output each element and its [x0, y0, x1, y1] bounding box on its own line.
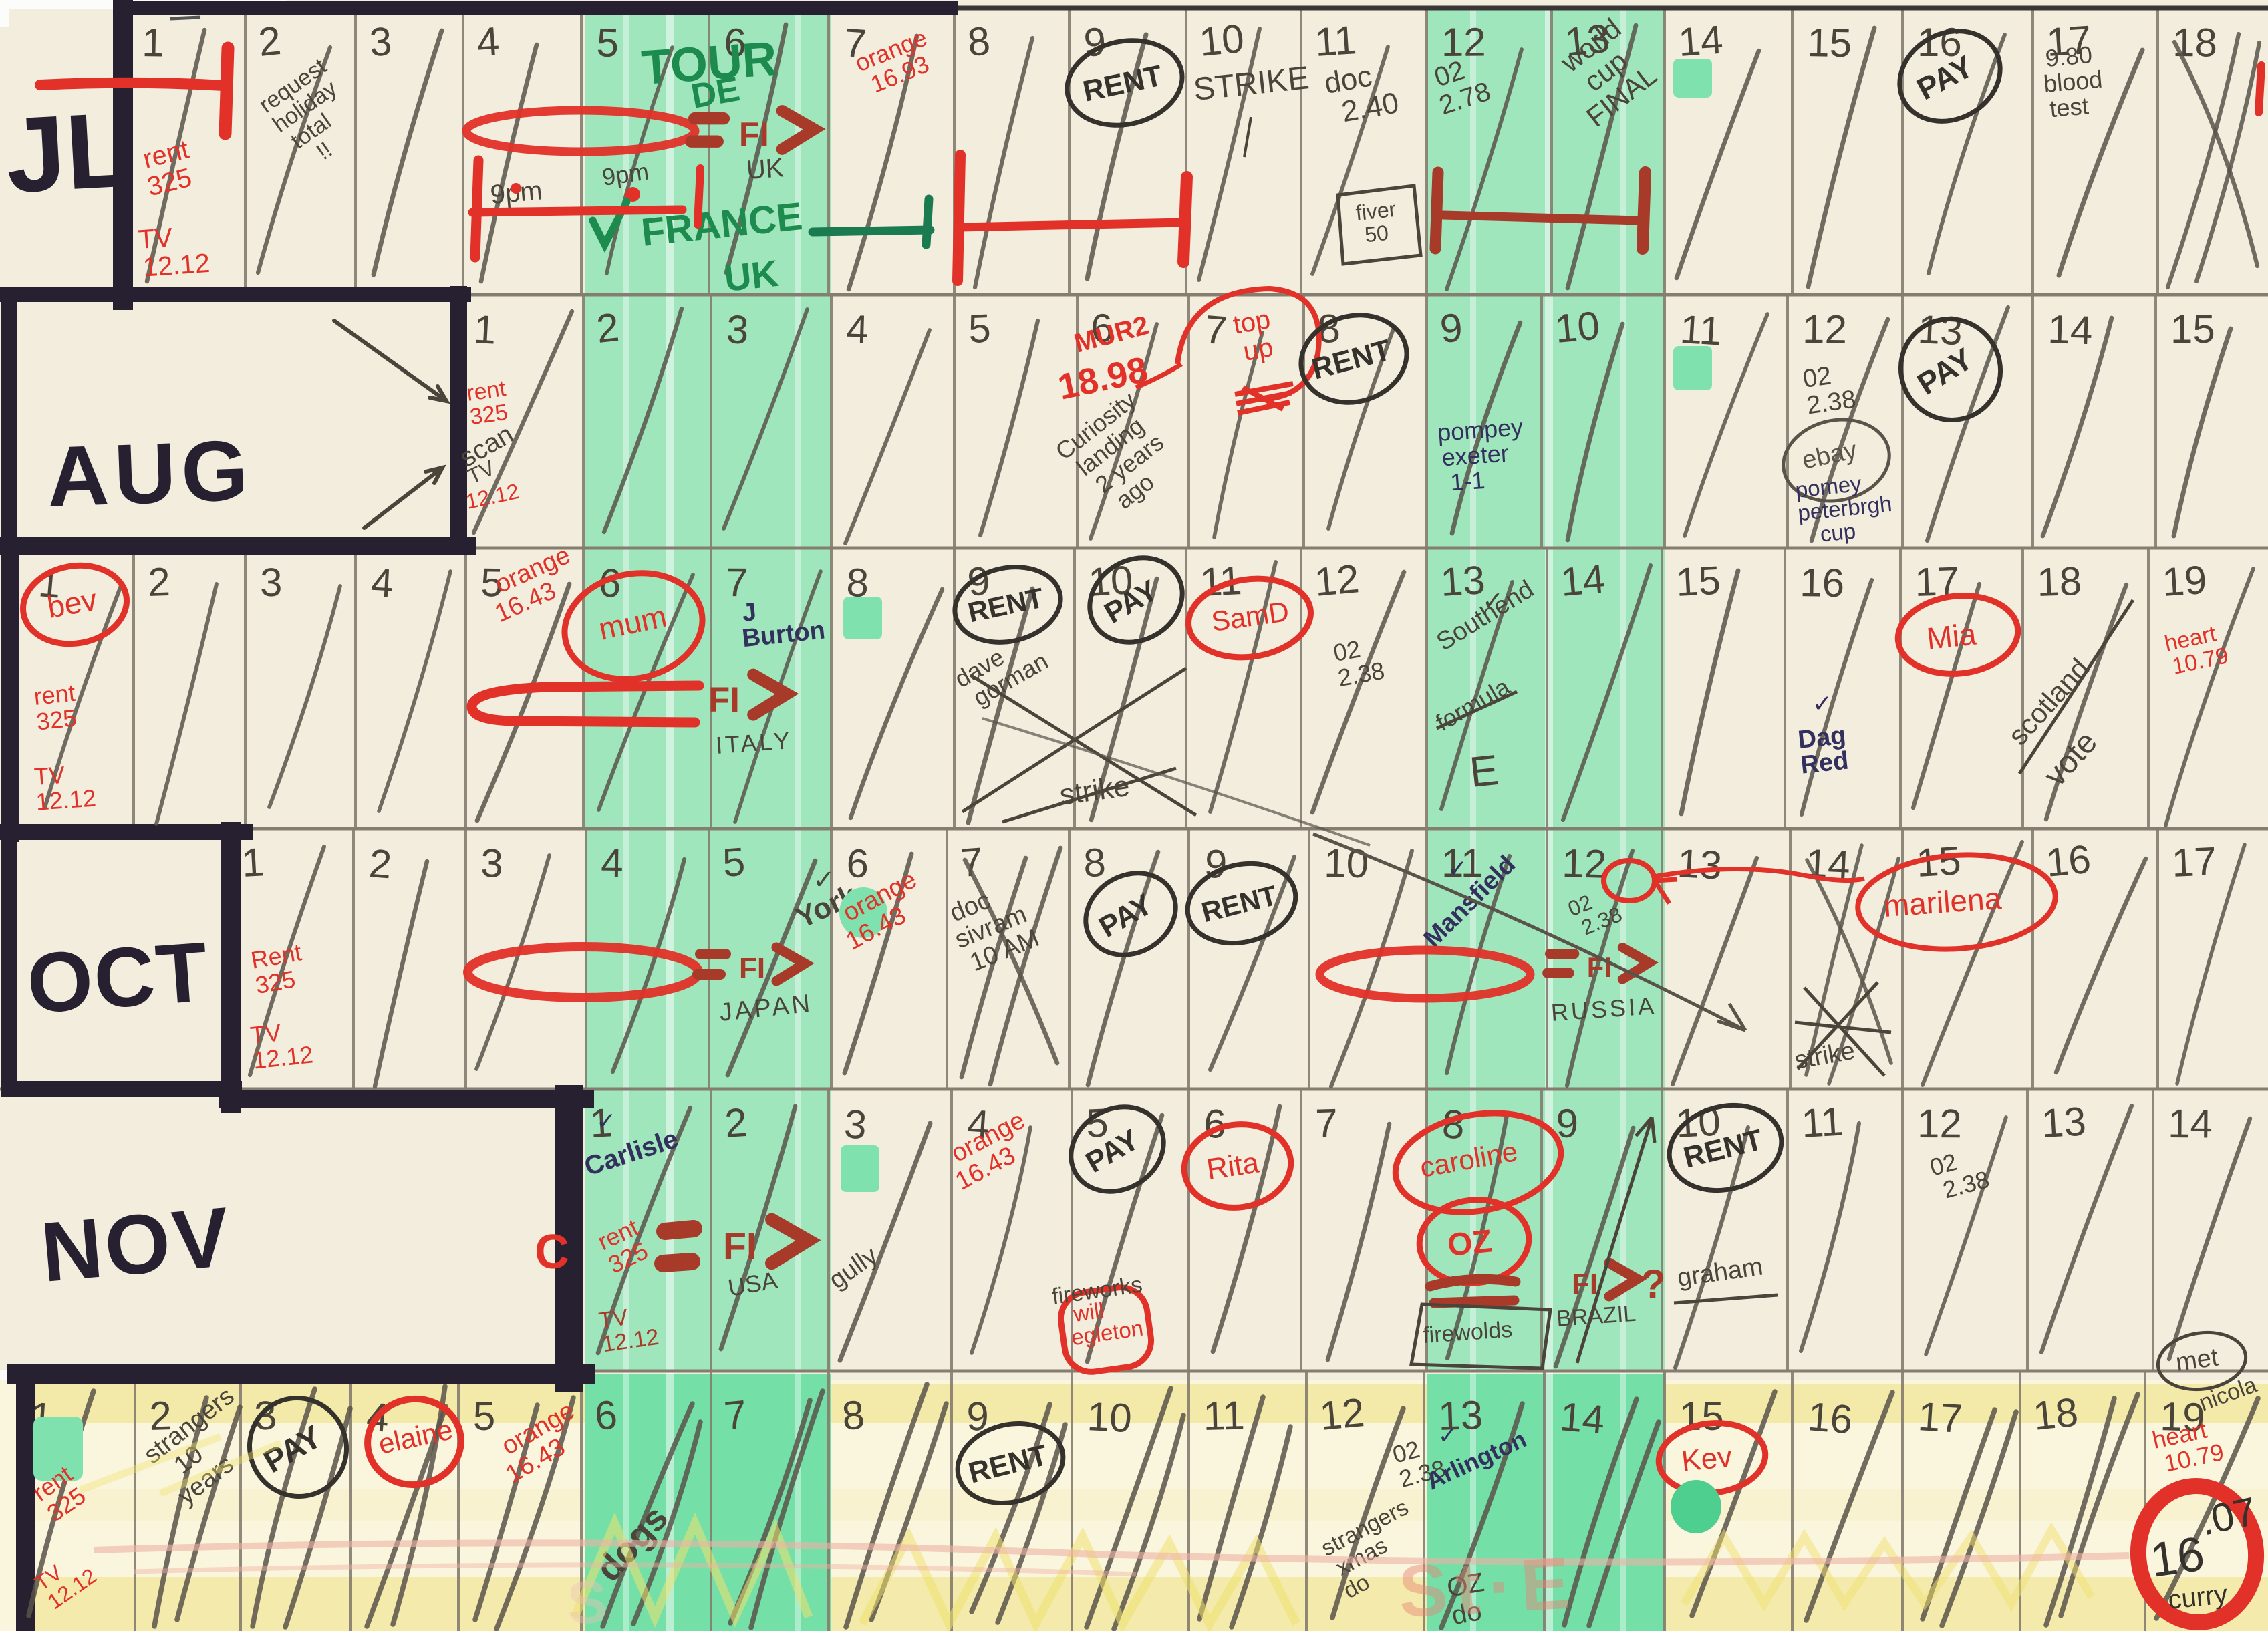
- svg-text:14: 14: [2168, 1101, 2213, 1146]
- svg-text:16: 16: [2147, 1527, 2207, 1587]
- svg-text:12: 12: [1441, 19, 1486, 65]
- svg-text:UK: UK: [722, 252, 781, 299]
- svg-text:NOV: NOV: [37, 1189, 235, 1300]
- svg-text:1: 1: [142, 20, 165, 65]
- svg-text:8: 8: [840, 1392, 866, 1439]
- svg-text:Kev: Kev: [1680, 1440, 1734, 1478]
- svg-text:AUG: AUG: [45, 422, 255, 525]
- svg-text:15: 15: [1675, 558, 1721, 605]
- svg-text:FI: FI: [739, 952, 765, 985]
- svg-text:OZ: OZ: [1446, 1223, 1494, 1264]
- svg-text:5: 5: [968, 306, 992, 351]
- svg-text:16: 16: [1806, 1394, 1854, 1442]
- svg-text:4: 4: [846, 307, 869, 352]
- svg-text:13: 13: [1676, 841, 1723, 888]
- svg-text:4: 4: [476, 19, 501, 65]
- svg-text:Mia: Mia: [1925, 616, 1979, 656]
- svg-text:FI: FI: [1572, 1268, 1598, 1300]
- svg-text:18: 18: [2172, 20, 2217, 65]
- svg-text:17: 17: [1917, 1394, 1964, 1441]
- svg-text:3: 3: [843, 1101, 868, 1147]
- svg-text:12: 12: [1917, 1101, 1962, 1146]
- svg-text:1: 1: [241, 839, 265, 885]
- svg-text:11: 11: [1203, 1393, 1246, 1439]
- svg-text:3: 3: [725, 307, 750, 353]
- svg-text:10: 10: [1197, 16, 1246, 65]
- svg-text:18: 18: [2036, 559, 2082, 605]
- svg-text:2: 2: [724, 1100, 749, 1146]
- svg-text:7: 7: [1203, 307, 1229, 353]
- svg-text:16: 16: [2044, 837, 2093, 885]
- svg-text:2: 2: [594, 305, 621, 351]
- svg-text:13: 13: [1439, 557, 1487, 605]
- svg-text:ITALY: ITALY: [715, 726, 793, 759]
- svg-text:15: 15: [1807, 20, 1852, 65]
- svg-text:8: 8: [1083, 840, 1106, 885]
- svg-text:16: 16: [1800, 560, 1845, 605]
- svg-text:10: 10: [1553, 303, 1601, 351]
- svg-text:9: 9: [1438, 305, 1464, 351]
- svg-text:6: 6: [593, 1392, 619, 1439]
- svg-text:7: 7: [722, 1392, 749, 1439]
- svg-text:DagRed: DagRed: [1797, 722, 1850, 780]
- svg-text:7: 7: [726, 560, 748, 605]
- svg-text:12: 12: [1562, 841, 1608, 887]
- svg-text:14: 14: [1558, 557, 1606, 605]
- svg-text:7: 7: [959, 839, 984, 885]
- svg-text:✓: ✓: [1812, 690, 1832, 717]
- svg-text:UK: UK: [746, 153, 785, 185]
- svg-text:18: 18: [2031, 1389, 2080, 1438]
- svg-text:14: 14: [2047, 307, 2094, 353]
- svg-text:3: 3: [368, 19, 393, 65]
- svg-text:E: E: [1467, 746, 1501, 796]
- svg-text:✓: ✓: [596, 1107, 616, 1135]
- svg-text:St·E: St·E: [1397, 1541, 1580, 1631]
- svg-text:5: 5: [473, 1394, 496, 1439]
- svg-text:2: 2: [257, 18, 283, 65]
- svg-text:3: 3: [260, 560, 282, 605]
- svg-text:5: 5: [596, 20, 620, 65]
- svg-text:14: 14: [1677, 17, 1724, 65]
- svg-text:3: 3: [253, 1392, 279, 1439]
- svg-text:15: 15: [2170, 307, 2215, 351]
- svg-text:2: 2: [368, 841, 393, 887]
- svg-text:12: 12: [1318, 1390, 1367, 1439]
- svg-text:11: 11: [1314, 17, 1358, 65]
- svg-text:FI: FI: [723, 1225, 757, 1268]
- svg-text:met: met: [2174, 1343, 2220, 1376]
- svg-text:13: 13: [2040, 1098, 2087, 1146]
- svg-text:10: 10: [1086, 1394, 1133, 1441]
- svg-text:curry: curry: [2166, 1580, 2229, 1615]
- svg-text:14: 14: [1558, 1394, 1606, 1443]
- svg-text:3: 3: [480, 841, 504, 886]
- svg-text:7: 7: [1314, 1100, 1338, 1146]
- svg-text:JL: JL: [3, 89, 134, 215]
- svg-text:C: C: [535, 1225, 569, 1279]
- svg-text:12: 12: [1312, 556, 1361, 605]
- svg-text:?: ?: [1641, 1262, 1666, 1306]
- svg-text:DE: DE: [688, 69, 742, 116]
- svg-text:11: 11: [1800, 1099, 1844, 1146]
- svg-text:12: 12: [1802, 307, 1847, 352]
- svg-text:OCT: OCT: [24, 924, 212, 1031]
- svg-text:8: 8: [966, 18, 992, 65]
- svg-text:17: 17: [2171, 839, 2218, 885]
- svg-text:FI: FI: [708, 680, 740, 720]
- svg-text:✓: ✓: [1438, 1423, 1457, 1449]
- svg-text:5: 5: [721, 839, 746, 885]
- svg-text:✓: ✓: [1447, 855, 1467, 882]
- svg-text:2: 2: [147, 559, 171, 605]
- svg-text:FI: FI: [739, 116, 769, 154]
- svg-text:4: 4: [370, 560, 394, 606]
- svg-text:6: 6: [846, 841, 870, 886]
- svg-text:rent325: rent325: [33, 679, 80, 736]
- svg-text:4: 4: [601, 841, 623, 885]
- svg-text:S: S: [566, 1569, 608, 1631]
- svg-text:1: 1: [472, 307, 497, 353]
- svg-text:19: 19: [2161, 557, 2209, 605]
